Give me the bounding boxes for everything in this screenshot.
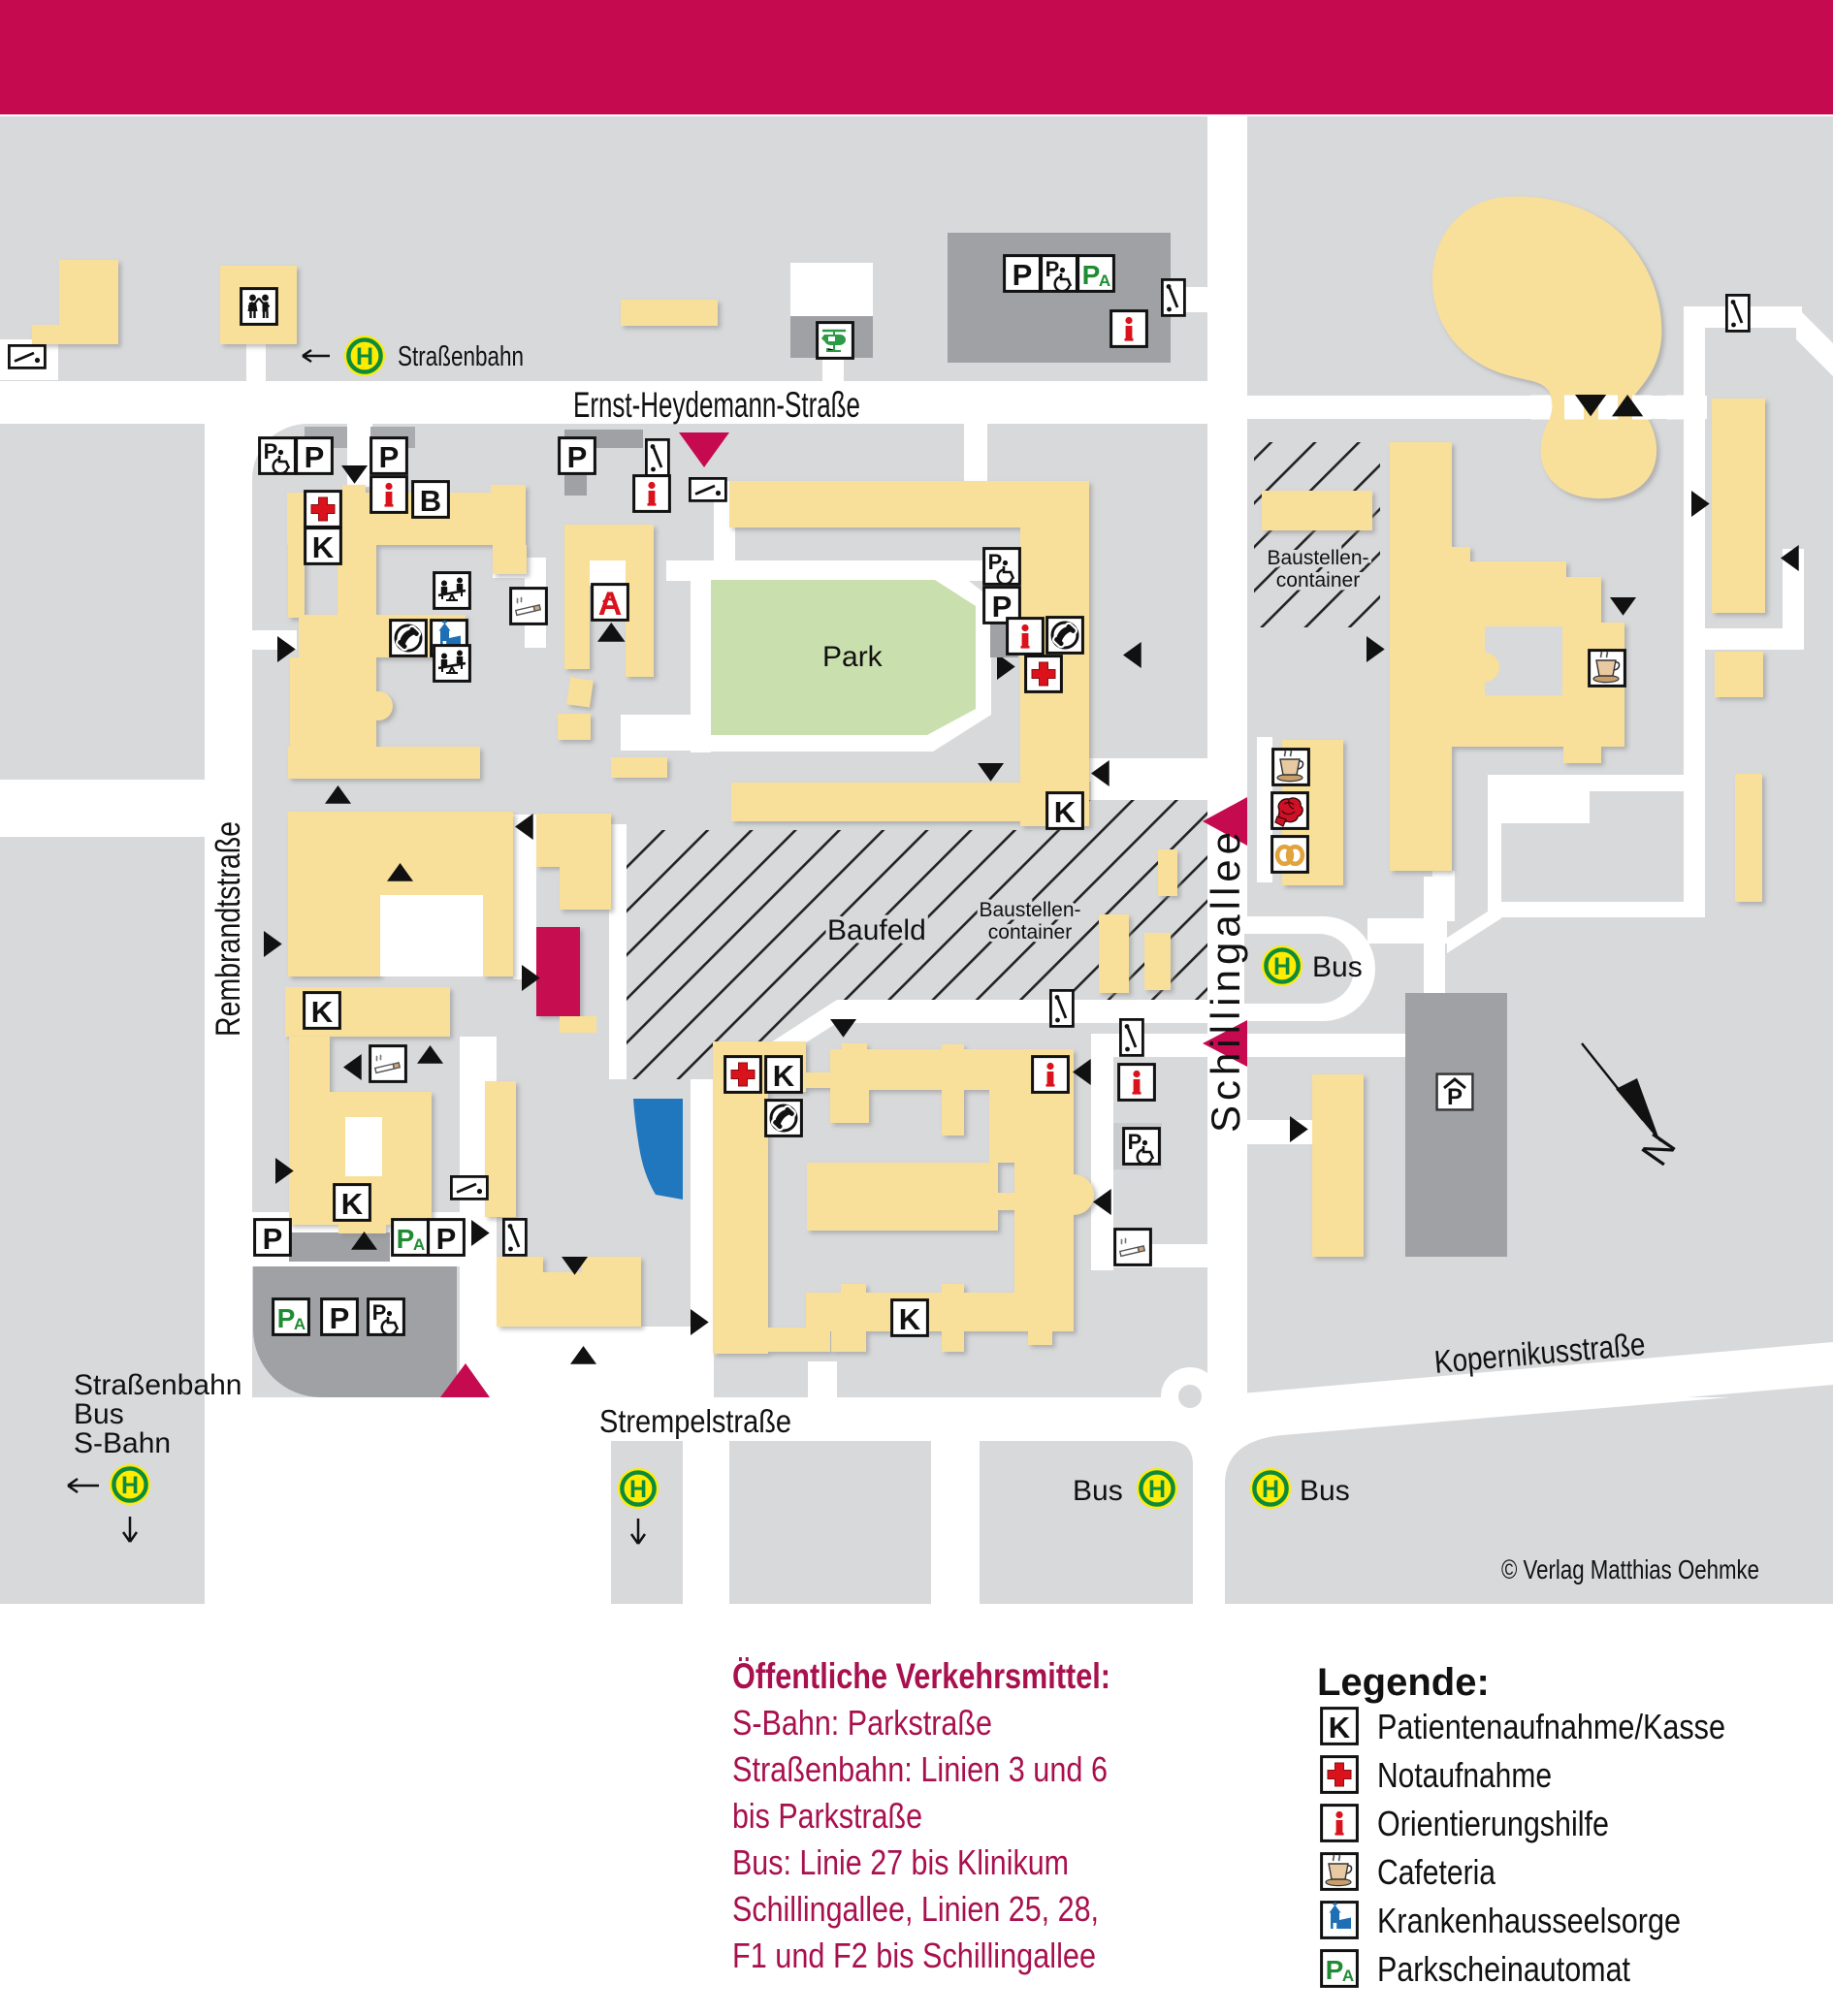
- svg-text:S-Bahn: S-Bahn: [74, 1427, 171, 1459]
- svg-text:Bus: Bus: [74, 1398, 124, 1430]
- svg-text:Legende:: Legende:: [1317, 1661, 1490, 1704]
- svg-text:Baustellen-: Baustellen-: [1267, 547, 1368, 569]
- svg-text:Straßenbahn: Straßenbahn: [74, 1369, 241, 1401]
- svg-text:Straßenbahn: Linien 3 und 6: Straßenbahn: Linien 3 und 6: [732, 1749, 1108, 1789]
- svg-text:Baufeld: Baufeld: [827, 914, 926, 946]
- svg-text:Krankenhausseelsorge: Krankenhausseelsorge: [1377, 1901, 1681, 1940]
- svg-text:Orientierungshilfe: Orientierungshilfe: [1377, 1804, 1609, 1843]
- svg-text:Park: Park: [822, 641, 884, 673]
- svg-text:Bus: Bus: [1300, 1475, 1350, 1507]
- svg-text:F1 und F2 bis Schillingallee: F1 und F2 bis Schillingallee: [732, 1936, 1096, 1975]
- svg-text:container: container: [1276, 569, 1360, 592]
- svg-text:bis Parkstraße: bis Parkstraße: [732, 1796, 922, 1836]
- svg-text:Öffentliche Verkehrsmittel:: Öffentliche Verkehrsmittel:: [732, 1656, 1110, 1696]
- svg-text:Parkscheinautomat: Parkscheinautomat: [1377, 1949, 1630, 1989]
- svg-text:Bus: Bus: [1312, 951, 1363, 983]
- svg-text:Schillingallee: Schillingallee: [1203, 832, 1248, 1133]
- svg-text:Bus: Bus: [1073, 1475, 1123, 1507]
- svg-text:Strempelstraße: Strempelstraße: [599, 1403, 791, 1439]
- svg-text:© Verlag Matthias Oehmke: © Verlag Matthias Oehmke: [1501, 1554, 1759, 1584]
- svg-text:Ernst-Heydemann-Straße: Ernst-Heydemann-Straße: [573, 385, 860, 425]
- svg-text:Baustellen-: Baustellen-: [979, 899, 1080, 921]
- svg-text:Bus: Linie 27 bis Klinikum: Bus: Linie 27 bis Klinikum: [732, 1842, 1069, 1882]
- svg-text:Patientenaufnahme/Kasse: Patientenaufnahme/Kasse: [1377, 1707, 1725, 1746]
- svg-text:Schillingallee, Linien 25, 28,: Schillingallee, Linien 25, 28,: [732, 1889, 1099, 1929]
- svg-text:S-Bahn: Parkstraße: S-Bahn: Parkstraße: [732, 1703, 992, 1743]
- svg-text:Cafeteria: Cafeteria: [1377, 1852, 1496, 1892]
- svg-text:Straßenbahn: Straßenbahn: [398, 341, 524, 372]
- svg-text:Rembrandtstraße: Rembrandtstraße: [209, 821, 247, 1037]
- svg-text:Notaufnahme: Notaufnahme: [1377, 1755, 1552, 1795]
- svg-text:container: container: [988, 921, 1072, 944]
